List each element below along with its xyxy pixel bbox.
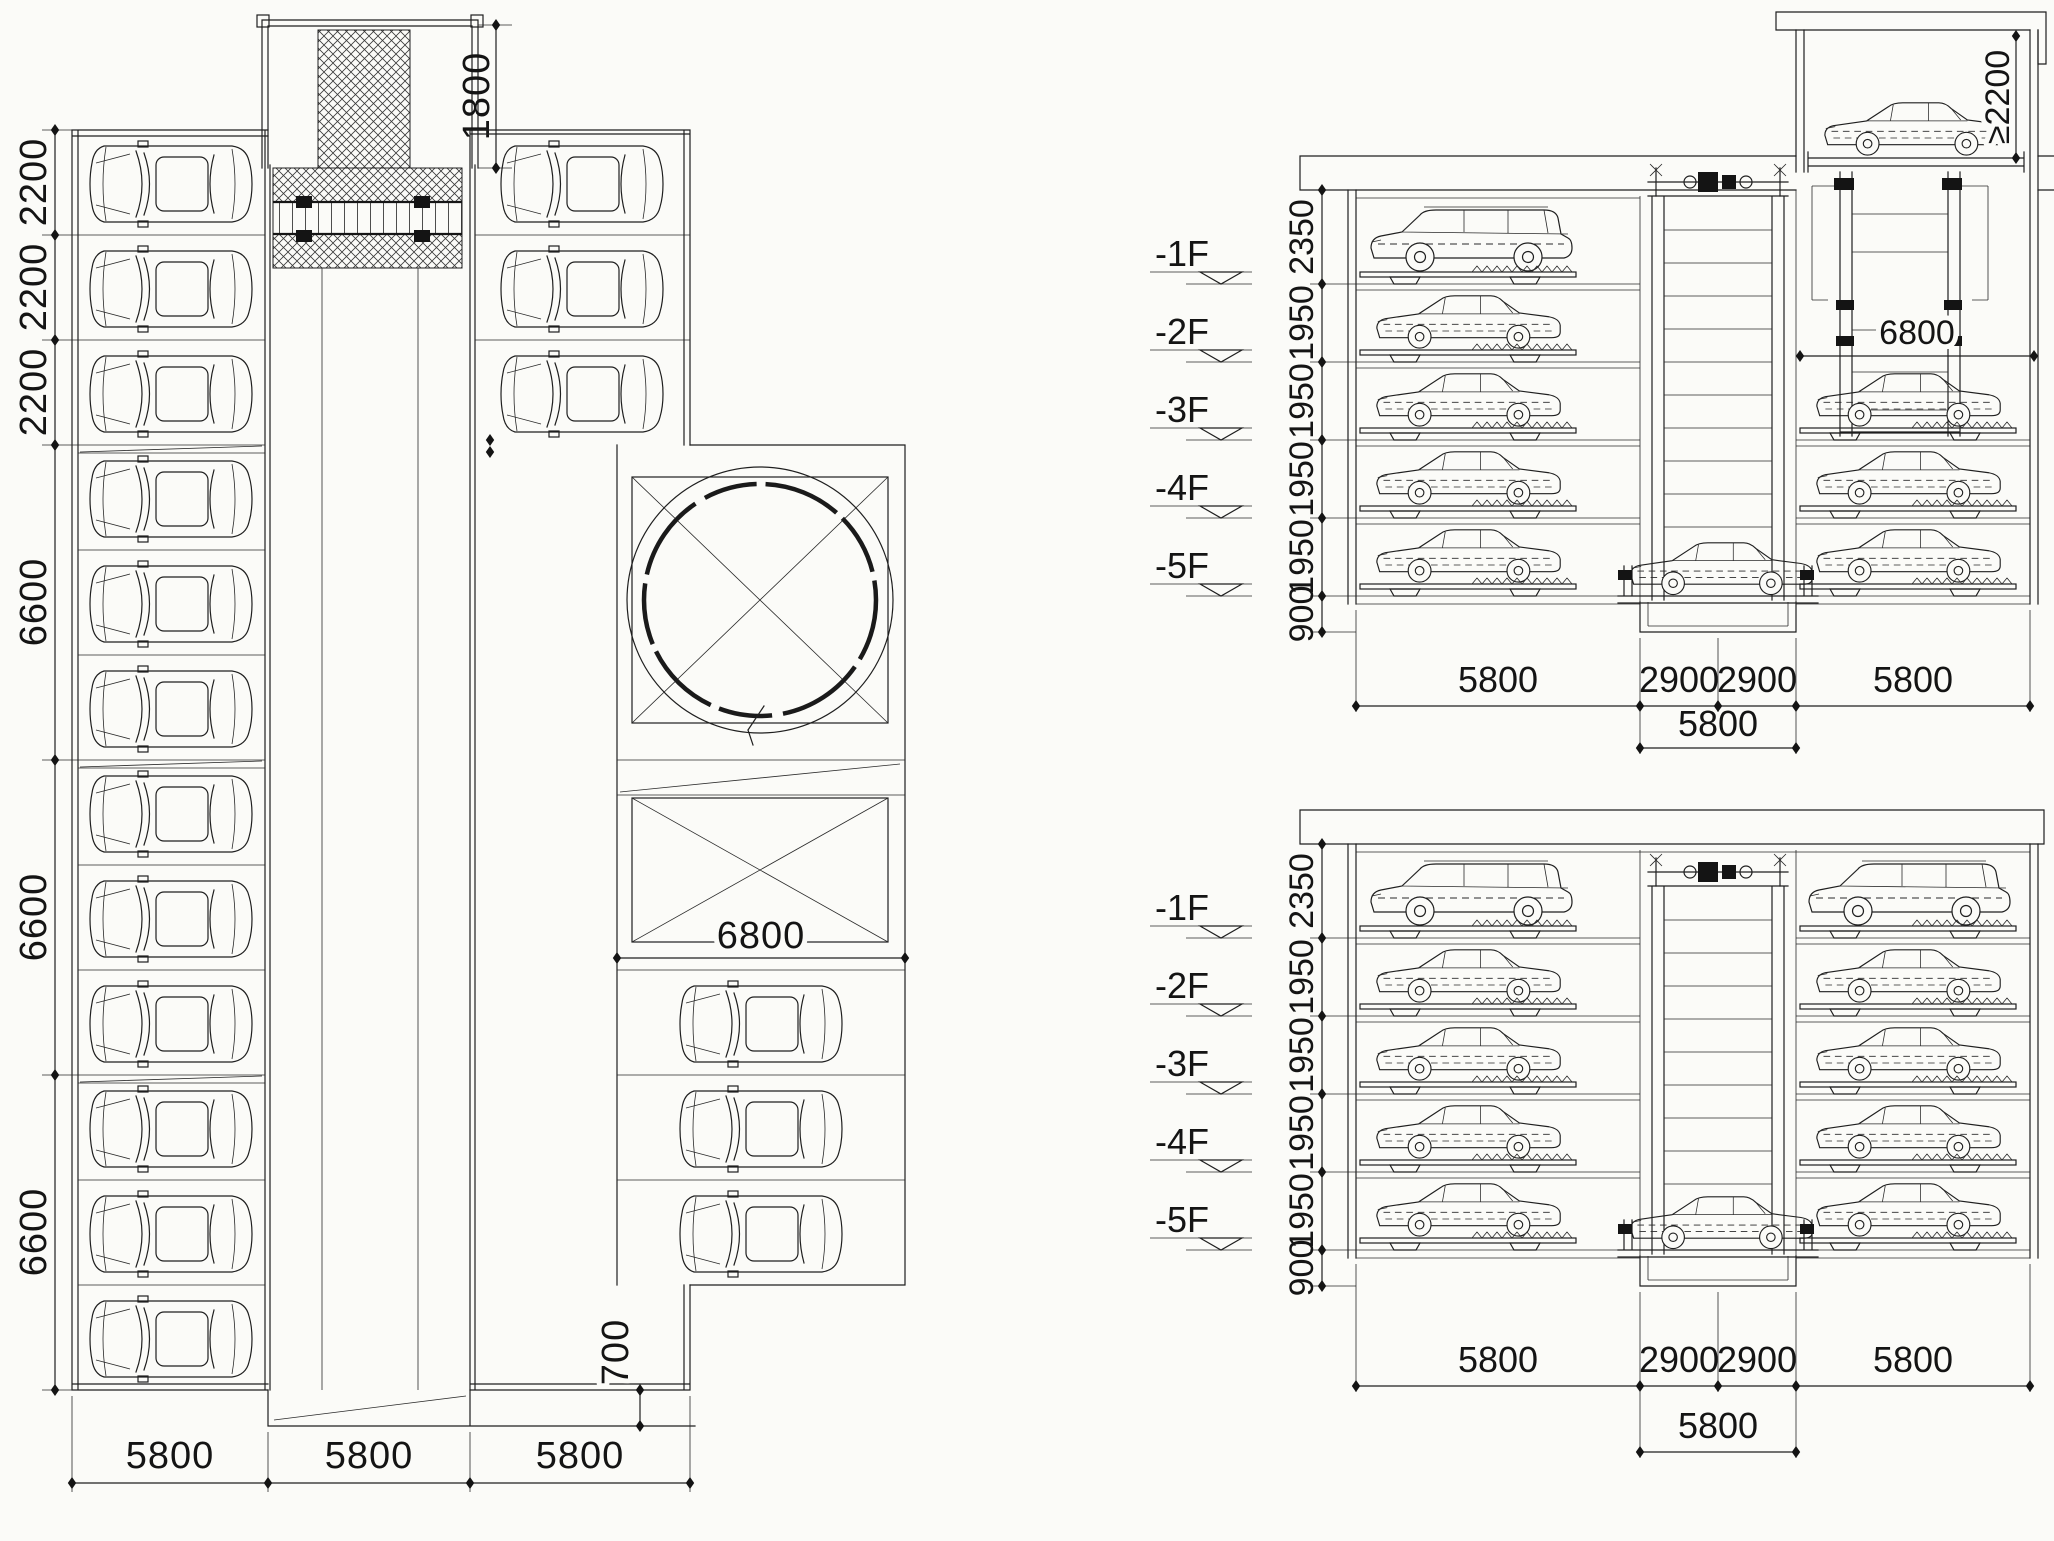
sb-level-label--1f: -1F [1155,887,1209,928]
section-top-lift-tower [1618,164,1818,603]
section-top-height-dims: 2350 1950 1950 1950 1950 900 [1283,184,1356,642]
st-dim-w-2900-1: 2900 [1639,659,1719,700]
plan-bottom-door: 700 [268,1319,695,1432]
level-label--3f: -3F [1155,389,1209,430]
sb-dim-w-5800-2: 5800 [1873,1339,1953,1380]
sb-dim-w-5800-1: 5800 [1458,1339,1538,1380]
plan-dim-2200-2: 2200 [13,243,55,332]
sb-dim-1950-1: 1950 [1283,939,1321,1015]
section-bottom-right-cars [1800,861,2016,1250]
plan-bottom-dim-chain: 5800 5800 5800 [68,1396,694,1492]
st-dim-1950-1: 1950 [1283,285,1321,361]
plan-dim-5800-1: 5800 [126,1435,215,1477]
sb-dim-w-2900-1: 2900 [1639,1339,1719,1380]
st-dim-1950-3: 1950 [1283,441,1321,517]
st-dim-w-total: 5800 [1678,703,1758,744]
level-label--4f: -4F [1155,467,1209,508]
plan-left-cars [90,141,252,1382]
plan-dim-6600-1: 6600 [13,558,55,647]
plan-turntable-bay: 6800 [486,434,909,1285]
plan-dim-6800: 6800 [717,915,806,957]
sb-dim-1950-3: 1950 [1283,1095,1321,1171]
st-dim-2350: 2350 [1283,199,1321,275]
plan-dim-6600-3: 6600 [13,1188,55,1277]
level-label--1f: -1F [1155,233,1209,274]
plan-right-upper-cars [501,141,663,437]
section-view-top: ≥2200 6800 [1150,12,2054,754]
entry-hoist: 6800 [1796,172,2038,436]
sb-dim-1950-4: 1950 [1283,1173,1321,1249]
plan-view: 1800 6800 [13,15,909,1492]
sb-dim-w-2900-2: 2900 [1717,1339,1797,1380]
level-label--2f: -2F [1155,311,1209,352]
plan-dim-1800: 1800 [456,52,498,141]
section-view-bottom: -1F -2F -3F -4F -5F 2350 1950 1950 1950 … [1150,810,2044,1458]
entry-cabin: ≥2200 [1776,12,2054,190]
st-dim-900: 900 [1283,586,1321,643]
section-top-level-markers: -1F -2F -3F -4F -5F [1150,233,1252,596]
sb-dim-1950-2: 1950 [1283,1017,1321,1093]
section-bottom-height-dims: 2350 1950 1950 1950 1950 900 [1283,838,1356,1296]
plan-dim-2200-3: 2200 [13,348,55,437]
st-dim-w-2900-2: 2900 [1717,659,1797,700]
sb-dim-w-total: 5800 [1678,1405,1758,1446]
section-top-right-cars [1800,374,2016,596]
sb-level-label--5f: -5F [1155,1199,1209,1240]
st-dim-w-5800-2: 5800 [1873,659,1953,700]
level-label--5f: -5F [1155,545,1209,586]
section-top-dim-entry-clearance: ≥2200 [1979,50,2017,144]
sb-level-label--4f: -4F [1155,1121,1209,1162]
cad-canvas: 1800 6800 [0,0,2054,1541]
sb-level-label--3f: -3F [1155,1043,1209,1084]
plan-entrance-lift [257,15,483,268]
st-dim-w-5800-1: 5800 [1458,659,1538,700]
sb-dim-900: 900 [1283,1240,1321,1297]
plan-dim-5800-2: 5800 [325,1435,414,1477]
section-bottom-left-cars [1360,861,1576,1250]
drawing-sheet: 1800 6800 [0,0,2054,1541]
plan-dim-2200-1: 2200 [13,138,55,227]
st-dim-1950-4: 1950 [1283,519,1321,595]
section-bottom-level-markers: -1F -2F -3F -4F -5F [1150,887,1252,1250]
section-top-left-cars [1360,207,1576,596]
plan-dim-6600-2: 6600 [13,873,55,962]
section-bottom-lift-tower [1618,854,1818,1257]
lift-mast-hatch [318,30,410,168]
sb-dim-2350: 2350 [1283,853,1321,929]
st-dim-1950-2: 1950 [1283,363,1321,439]
plan-left-dim-chain: 2200 2200 2200 6600 6600 6600 [13,124,78,1396]
sb-level-label--2f: -2F [1155,965,1209,1006]
section-top-dim-pit-width: 6800 [1879,314,1955,352]
section-bottom-width-dims: 5800 2900 2900 5800 5800 [1352,1264,2034,1458]
plan-left-stall-lines [78,235,265,1285]
plan-dim-5800-3: 5800 [536,1435,625,1477]
plan-dim-entrance: 1800 [456,19,512,174]
plan-dim-700: 700 [595,1319,637,1385]
